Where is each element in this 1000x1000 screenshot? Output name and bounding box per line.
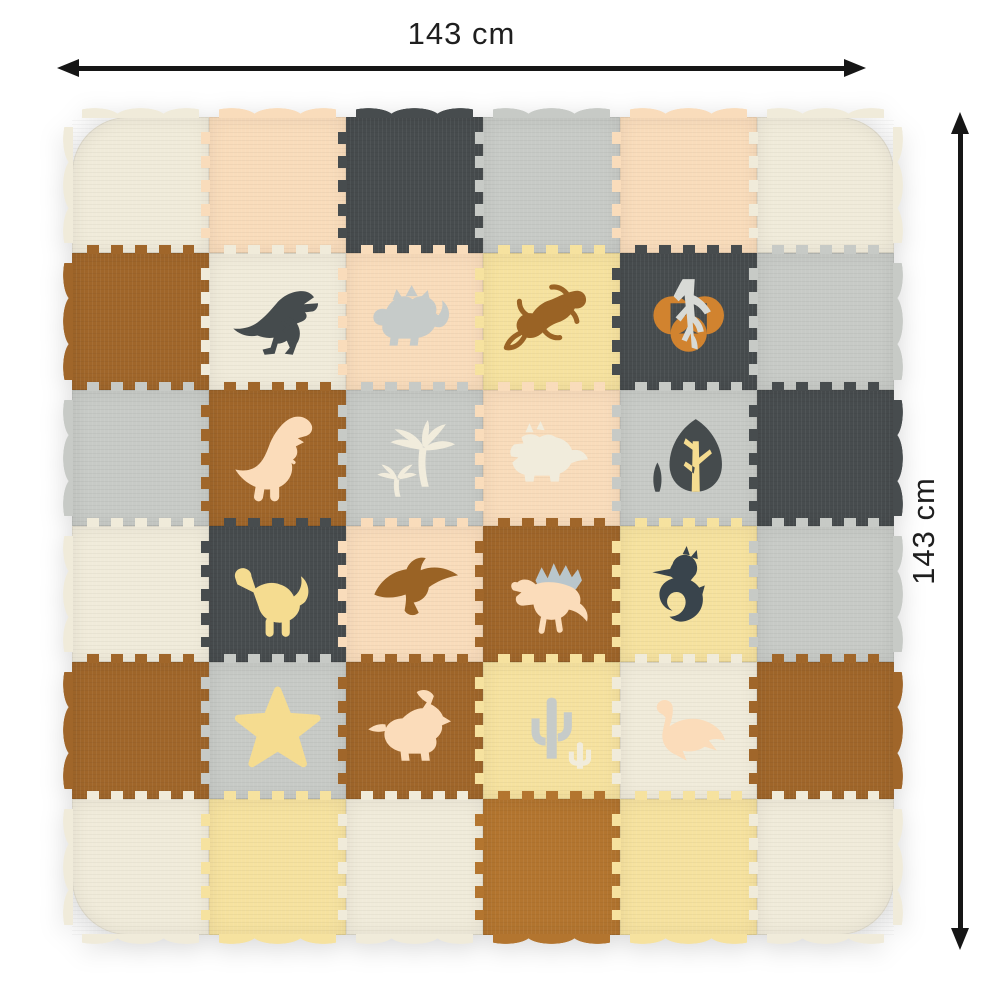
width-dimension-label: 143 cm	[57, 16, 866, 52]
wavy-edge	[356, 934, 473, 944]
play-mat	[72, 117, 894, 935]
vertical-arrow-icon	[950, 112, 970, 950]
pterodactyl-tile	[346, 526, 483, 662]
trex_big-icon	[227, 407, 328, 508]
trex_big-tile	[209, 390, 346, 526]
wavy-edge	[63, 263, 73, 379]
star-icon	[227, 680, 328, 781]
horizontal-arrow-icon	[57, 58, 866, 78]
plain-tile	[757, 390, 894, 526]
plesiosaur-tile	[620, 662, 757, 798]
wavy-edge	[63, 809, 73, 925]
tree-icon	[638, 407, 739, 508]
plesiosaur-icon	[638, 680, 739, 781]
plain-tile	[757, 117, 894, 253]
wavy-edge	[82, 934, 199, 944]
cactus-icon	[501, 680, 602, 781]
wavy-edge	[767, 934, 884, 944]
wavy-edge	[356, 108, 473, 118]
brachiosaurus-icon	[227, 544, 328, 645]
trex-icon	[227, 271, 328, 372]
height-dimension-label: 143 cm	[906, 477, 942, 585]
wavy-edge	[493, 934, 610, 944]
gecko-tile	[483, 253, 620, 389]
wavy-edge	[63, 536, 73, 652]
pterodactyl-icon	[364, 544, 465, 645]
plain-tile	[346, 117, 483, 253]
tree_roots-tile	[620, 253, 757, 389]
plain-tile	[757, 526, 894, 662]
palms-icon	[364, 407, 465, 508]
stegosaurus-tile	[346, 253, 483, 389]
plain-tile	[72, 253, 209, 389]
wavy-edge	[63, 672, 73, 788]
plain-tile	[72, 799, 209, 935]
width-dimension: 143 cm	[57, 16, 866, 78]
plain-tile	[620, 117, 757, 253]
arrow-line	[65, 66, 858, 71]
plain-tile	[620, 799, 757, 935]
wavy-edge	[63, 400, 73, 516]
triceratops-tile	[483, 390, 620, 526]
plain-tile	[72, 390, 209, 526]
plain-tile	[483, 799, 620, 935]
triceratops-icon	[501, 407, 602, 508]
wavy-edge	[219, 934, 336, 944]
arrow-line	[958, 120, 963, 942]
wavy-edge	[63, 127, 73, 243]
plain-tile	[72, 526, 209, 662]
trex-tile	[209, 253, 346, 389]
wavy-edge	[767, 108, 884, 118]
seahorse-icon	[638, 544, 739, 645]
plain-tile	[757, 799, 894, 935]
seahorse-tile	[620, 526, 757, 662]
arrow-head-down-icon	[951, 928, 969, 950]
palms-tile	[346, 390, 483, 526]
wavy-edge	[219, 108, 336, 118]
plain-tile	[72, 662, 209, 798]
plain-tile	[209, 117, 346, 253]
gecko-icon	[501, 271, 602, 372]
parasaurolophus-tile	[346, 662, 483, 798]
wavy-edge	[493, 108, 610, 118]
wavy-edge	[630, 934, 747, 944]
spinosaurus-icon	[501, 544, 602, 645]
arrow-head-right-icon	[844, 59, 866, 77]
tree_roots-icon	[638, 271, 739, 372]
spinosaurus-tile	[483, 526, 620, 662]
height-dimension: 143 cm	[900, 112, 1000, 950]
stegosaurus-icon	[364, 271, 465, 372]
plain-tile	[757, 253, 894, 389]
tree-tile	[620, 390, 757, 526]
cactus-tile	[483, 662, 620, 798]
wavy-edge	[82, 108, 199, 118]
plain-tile	[483, 117, 620, 253]
product-photo: 143 cm 143 cm	[0, 0, 1000, 1000]
parasaurolophus-icon	[364, 680, 465, 781]
plain-tile	[346, 799, 483, 935]
plain-tile	[72, 117, 209, 253]
brachiosaurus-tile	[209, 526, 346, 662]
plain-tile	[209, 799, 346, 935]
wavy-edge	[630, 108, 747, 118]
star-tile	[209, 662, 346, 798]
plain-tile	[757, 662, 894, 798]
